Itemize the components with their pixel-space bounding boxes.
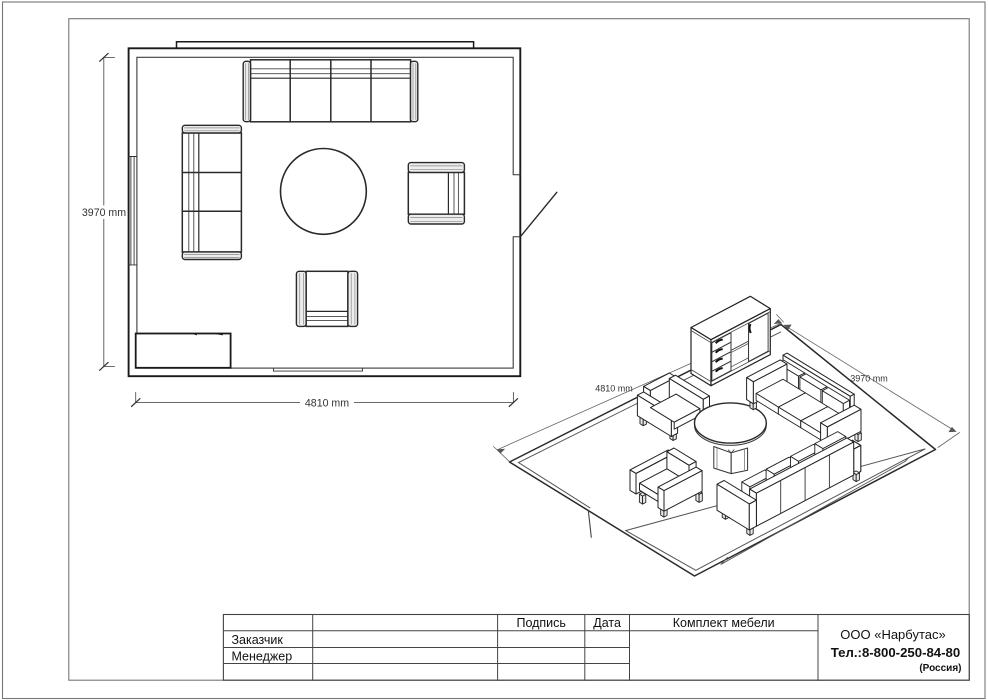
svg-text:Подпись: Подпись [516,616,565,630]
svg-text:Менеджер: Менеджер [232,650,293,664]
svg-text:Тел.:8-800-250-84-80: Тел.:8-800-250-84-80 [831,645,960,660]
svg-text:4810 mm: 4810 mm [305,397,349,409]
svg-text:Дата: Дата [593,616,621,630]
svg-text:Комплект мебели: Комплект мебели [673,616,775,630]
svg-text:3970 mm: 3970 mm [82,207,126,219]
svg-text:ООО «Нарбутас»: ООО «Нарбутас» [840,627,945,642]
svg-text:4810 mm: 4810 mm [595,384,633,394]
svg-text:3970 mm: 3970 mm [850,374,888,384]
svg-text:Заказчик: Заказчик [232,633,284,647]
svg-text:(Россия): (Россия) [919,663,961,674]
